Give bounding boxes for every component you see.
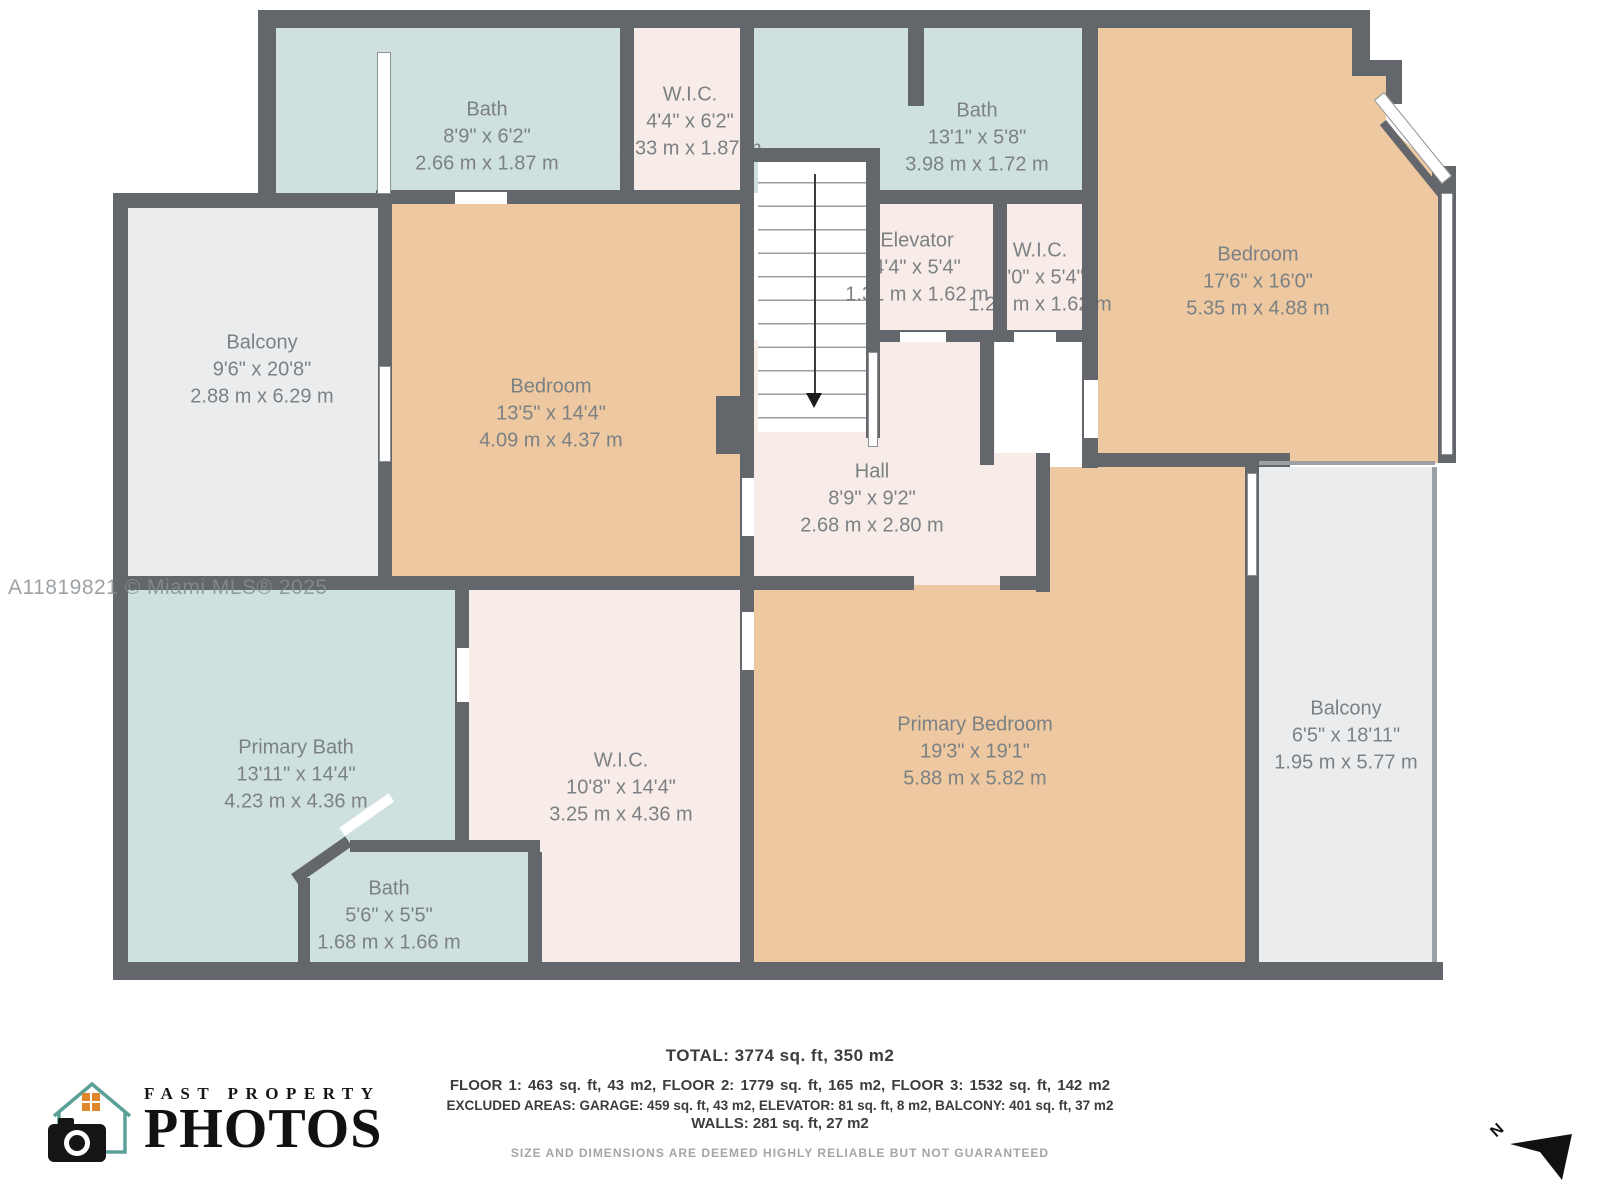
walls-area-text: WALLS: 281 sq. ft, 27 m2 — [280, 1115, 1280, 1132]
wall — [908, 28, 924, 106]
floor-areas-text: FLOOR 1: 463 sq. ft, 43 m2, FLOOR 2: 177… — [280, 1077, 1280, 1094]
logo-text: FAST PROPERTY PHOTOS — [144, 1084, 382, 1156]
room-label-primary-bedroom: Primary Bedroom19'3" x 19'1"5.88 m x 5.8… — [897, 712, 1053, 793]
wall — [258, 10, 276, 208]
wall — [744, 576, 914, 590]
wall — [620, 28, 634, 194]
wall — [350, 840, 540, 852]
total-area-text: TOTAL: 3774 sq. ft, 350 m2 — [280, 1046, 1280, 1066]
room-label-bath-3: Bath5'6" x 5'5"1.68 m x 1.66 m — [317, 876, 460, 957]
window — [1247, 473, 1257, 576]
wall — [866, 190, 1096, 204]
room-label-bath-1: Bath8'9" x 6'2"2.66 m x 1.87 m — [415, 97, 558, 178]
wall — [993, 195, 1007, 340]
room-label-bath-2: Bath13'1" x 5'8"3.98 m x 1.72 m — [905, 98, 1048, 179]
wall — [376, 576, 744, 590]
wall — [716, 396, 740, 454]
wall — [528, 852, 542, 962]
disclaimer-text: SIZE AND DIMENSIONS ARE DEEMED HIGHLY RE… — [280, 1146, 1280, 1160]
wall — [113, 962, 1443, 980]
wall — [740, 28, 754, 194]
wall — [980, 340, 994, 465]
stair-down-arrow-icon — [806, 393, 822, 408]
door-opening — [900, 332, 946, 342]
door-opening — [455, 192, 507, 204]
door-opening — [1084, 380, 1098, 438]
wall — [113, 193, 385, 208]
window — [1441, 193, 1453, 455]
door-opening — [457, 648, 469, 702]
logo-house-camera-icon — [40, 1070, 158, 1170]
area-summary: TOTAL: 3774 sq. ft, 350 m2 FLOOR 1: 463 … — [280, 1046, 1280, 1160]
door-opening — [1014, 332, 1056, 342]
stair-direction-line — [814, 174, 816, 394]
wall — [752, 148, 878, 162]
room-label-balcony-left: Balcony9'6" x 20'8"2.88 m x 6.29 m — [190, 330, 333, 411]
floor-plan-page: Bath8'9" x 6'2"2.66 m x 1.87 m W.I.C.4'4… — [0, 0, 1600, 1200]
north-label: N — [1487, 1120, 1508, 1141]
room-label-primary-bath: Primary Bath13'11" x 14'4"4.23 m x 4.36 … — [224, 735, 367, 816]
mls-watermark: A11819821 © Miami MLS® 2025 — [8, 576, 328, 600]
primary-bedroom-upper-area — [1050, 467, 1250, 592]
excluded-areas-text: EXCLUDED AREAS: GARAGE: 459 sq. ft, 43 m… — [280, 1098, 1280, 1113]
window — [868, 352, 878, 447]
window — [379, 366, 391, 462]
logo-line-2: PHOTOS — [144, 1104, 382, 1156]
door-opening — [742, 478, 754, 536]
fast-property-photos-logo: FAST PROPERTY PHOTOS — [40, 1070, 382, 1170]
wall — [298, 878, 310, 962]
wall — [1036, 453, 1050, 592]
door-opening — [742, 612, 754, 670]
wall — [455, 590, 469, 850]
window — [377, 52, 391, 194]
wall — [258, 10, 1370, 28]
room-label-balcony-right: Balcony6'5" x 18'11"1.95 m x 5.77 m — [1274, 696, 1417, 777]
room-label-hall: Hall8'9" x 9'2"2.68 m x 2.80 m — [800, 459, 943, 540]
room-label-wic-3: W.I.C.10'8" x 14'4"3.25 m x 4.36 m — [549, 748, 692, 829]
balcony-rail — [1259, 461, 1435, 465]
room-label-bedroom-center: Bedroom13'5" x 14'4"4.09 m x 4.37 m — [479, 374, 622, 455]
north-arrow-icon — [1506, 1126, 1578, 1188]
wall — [376, 190, 744, 204]
balcony-rail — [1432, 467, 1437, 962]
room-label-bedroom-right: Bedroom17'6" x 16'0"5.35 m x 4.88 m — [1186, 242, 1329, 323]
